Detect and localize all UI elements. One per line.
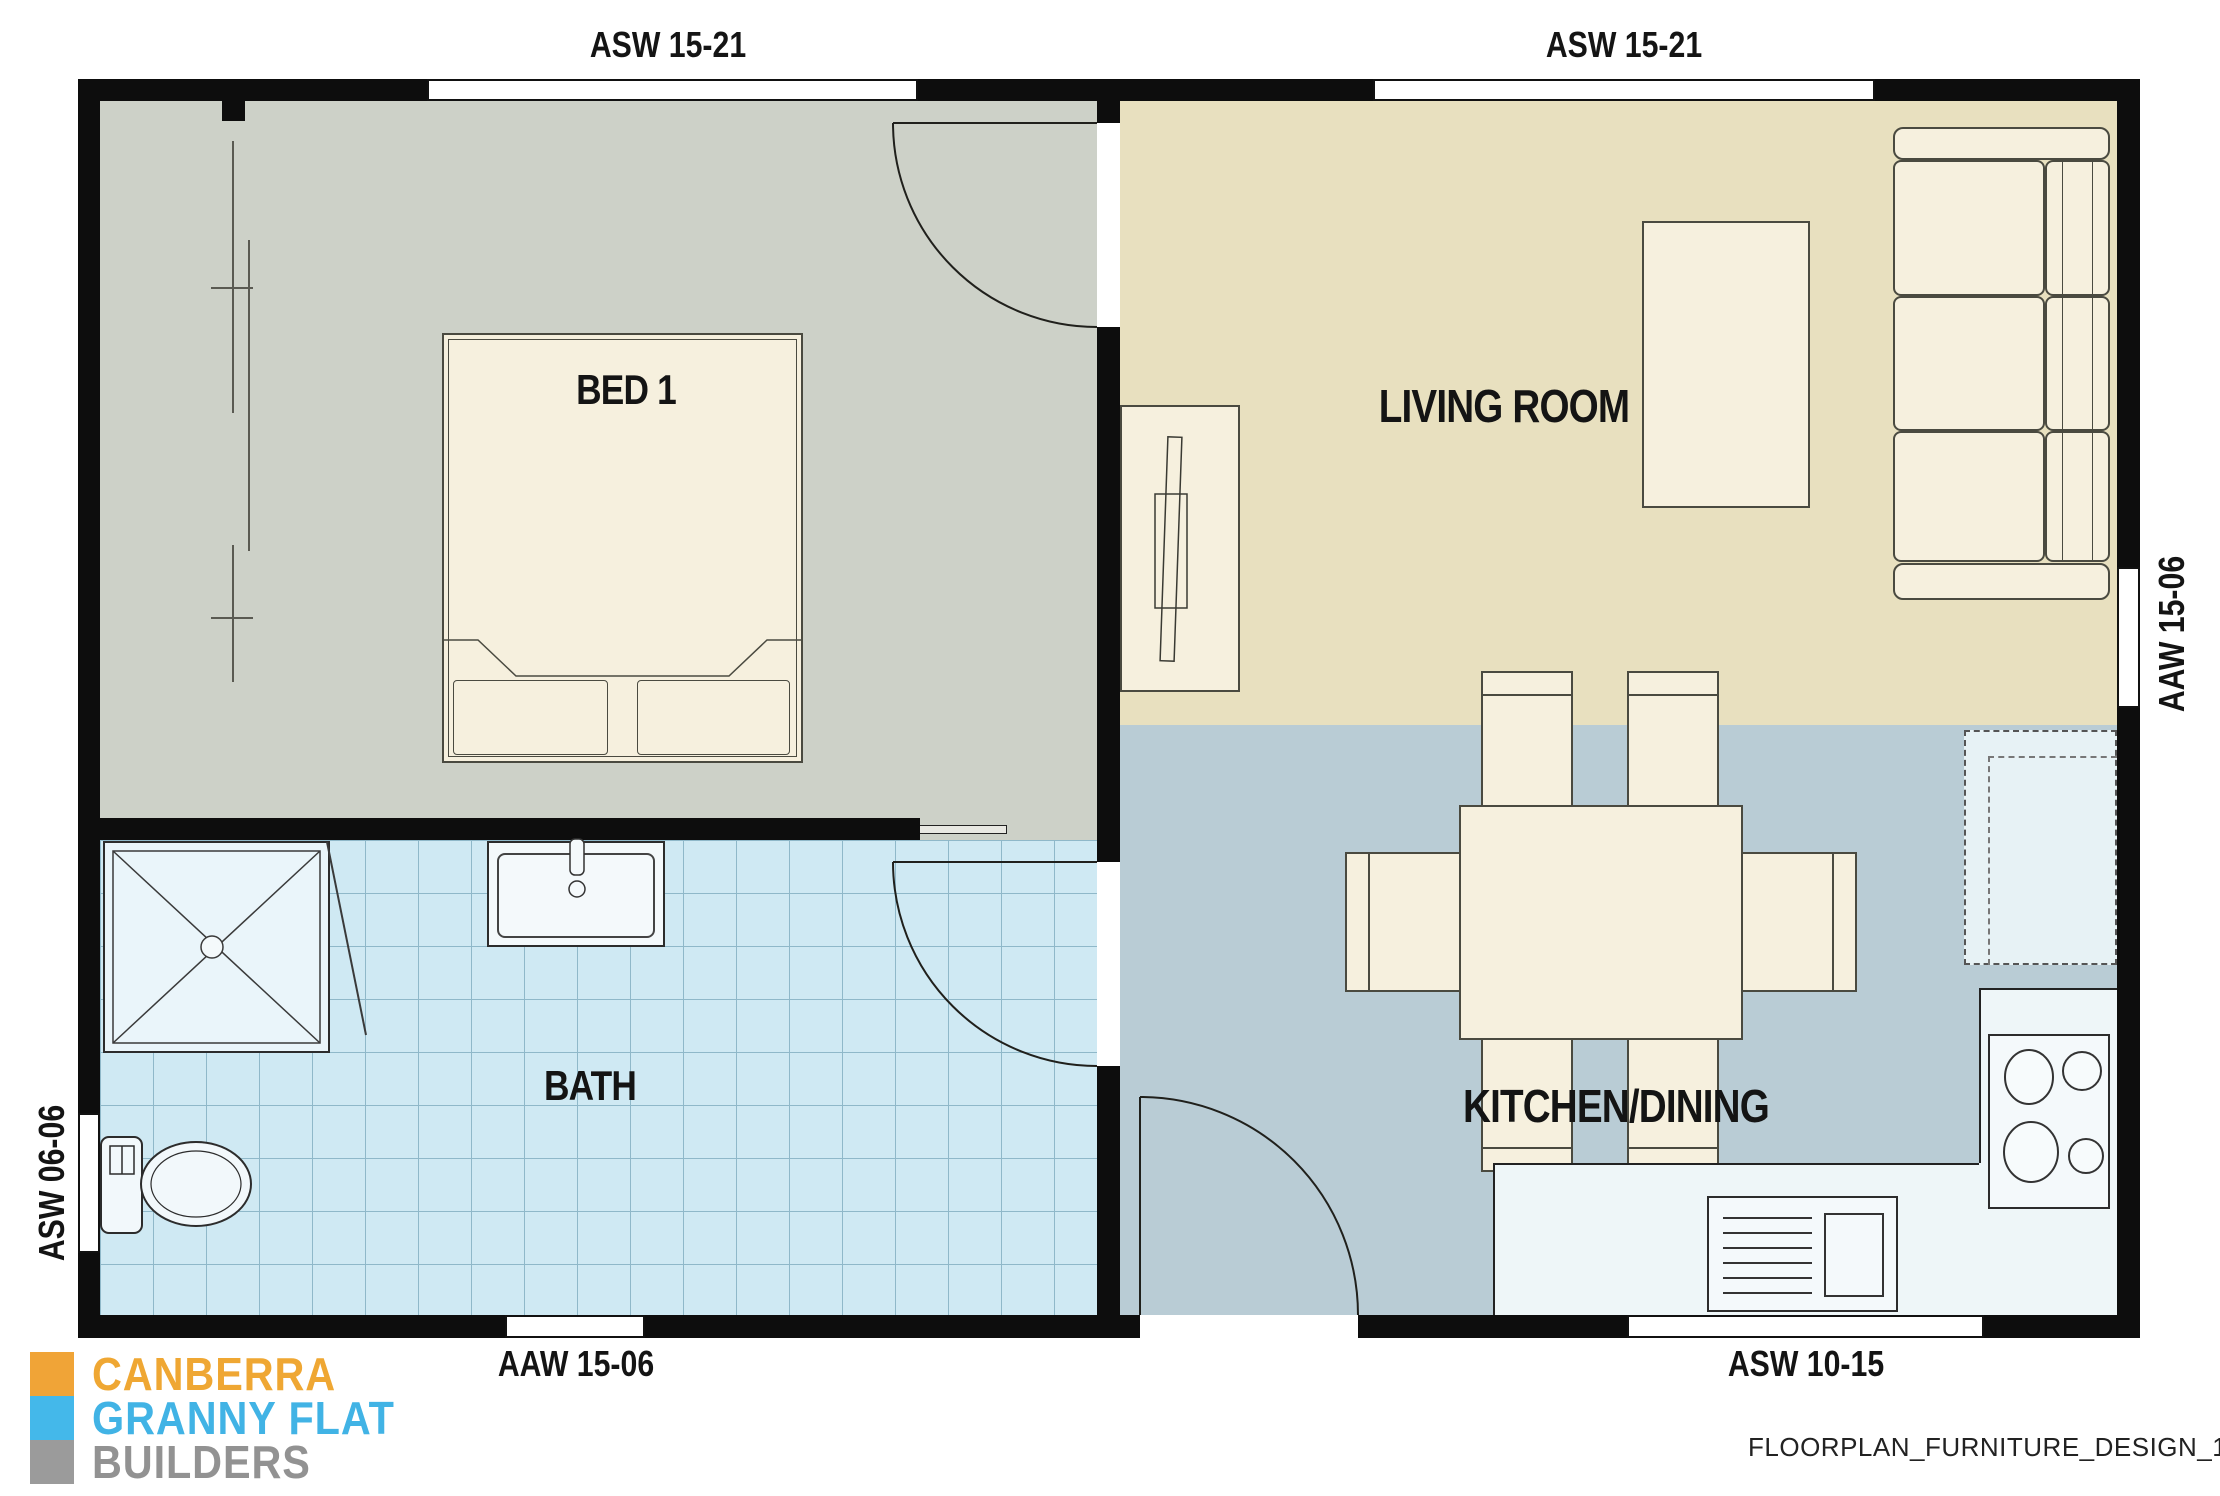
wall-right [2117,79,2140,567]
window-bottom-left [505,1315,645,1338]
window-label-right: AAW 15-06 [2151,556,2193,712]
window-label-top-right: ASW 15-21 [1546,24,1702,66]
cooktop [1988,1034,2110,1209]
window-top-right [1373,79,1875,101]
sofa-backrest [2045,160,2110,296]
wall-left [78,79,100,1113]
wall-bottom [78,1315,505,1338]
wall-bottom [1358,1315,1627,1338]
wall-interior-vertical [1097,1066,1120,1315]
wall-interior-horizontal [100,818,920,840]
wall-bottom [645,1315,1140,1338]
sofa-backrest [2045,431,2110,562]
window-top-left [427,79,918,101]
sofa-seat-cushion [1893,160,2045,296]
coffee-table [1642,221,1810,508]
window-right [2117,567,2140,708]
fridge-space-inner-line [1988,756,2117,965]
sofa-armrest [1893,563,2110,600]
sofa-seat-cushion [1893,296,2045,431]
window-left [78,1113,100,1253]
wall-top [1875,79,2140,101]
sofa-backrest-line [2062,162,2063,560]
sofa-armrest [1893,127,2110,160]
shower [103,841,330,1053]
room-label-living: LIVING ROOM [1379,379,1630,433]
kitchen-sink-basin [1824,1213,1884,1297]
dining-table [1459,805,1743,1040]
wall-right [2117,708,2140,1338]
sofa-backrest [2045,296,2110,431]
vanity-basin [497,853,655,938]
sofa-backrest-line [2092,162,2093,560]
window-label-bottom-left: AAW 15-06 [498,1343,654,1385]
wardrobe-slider-line [232,545,234,682]
wall-interior-vertical [1097,101,1120,123]
room-label-kitchen: KITCHEN/DINING [1463,1079,1769,1133]
wardrobe-tick [211,617,253,619]
wall-top [918,79,1373,101]
wall-interior-vertical [1097,327,1120,862]
room-label-bed1: BED 1 [576,366,676,414]
logo-text-builders: BUILDERS [92,1435,311,1489]
floorplan-canvas: BED 1 LIVING ROOM BATH KITCHEN/DINING AS… [0,0,2220,1496]
drawing-id: FLOORPLAN_FURNITURE_DESIGN_102 [1748,1432,2220,1463]
logo-row-builders: BUILDERS [30,1440,335,1484]
wall-bottom [1984,1315,2140,1338]
logo-row-granny-flat: GRANNY FLAT [30,1396,428,1440]
bed-pillow [453,680,608,755]
dining-chair-back [1832,852,1857,992]
dining-chair-back [1481,671,1573,696]
sofa-seat-cushion [1893,431,2045,562]
logo-square-orange [30,1352,74,1396]
window-label-left: ASW 06-06 [31,1105,73,1261]
window-label-bottom-right: ASW 10-15 [1728,1343,1884,1385]
wall-nib [222,101,245,121]
tv-unit [1120,405,1240,692]
window-label-top-left: ASW 15-21 [590,24,746,66]
dining-chair-back [1627,671,1719,696]
entry-door-threshold [1140,1315,1358,1338]
wardrobe-slider-line [232,141,234,413]
wall-top [78,79,427,101]
bed-pillow [637,680,790,755]
logo-square-blue [30,1396,74,1440]
logo-square-gray [30,1440,74,1484]
dining-chair-back [1345,852,1370,992]
wardrobe-tick [211,287,253,289]
room-label-bath: BATH [544,1062,636,1110]
window-bottom-right [1627,1315,1984,1338]
logo-row-canberra: CANBERRA [30,1352,363,1396]
